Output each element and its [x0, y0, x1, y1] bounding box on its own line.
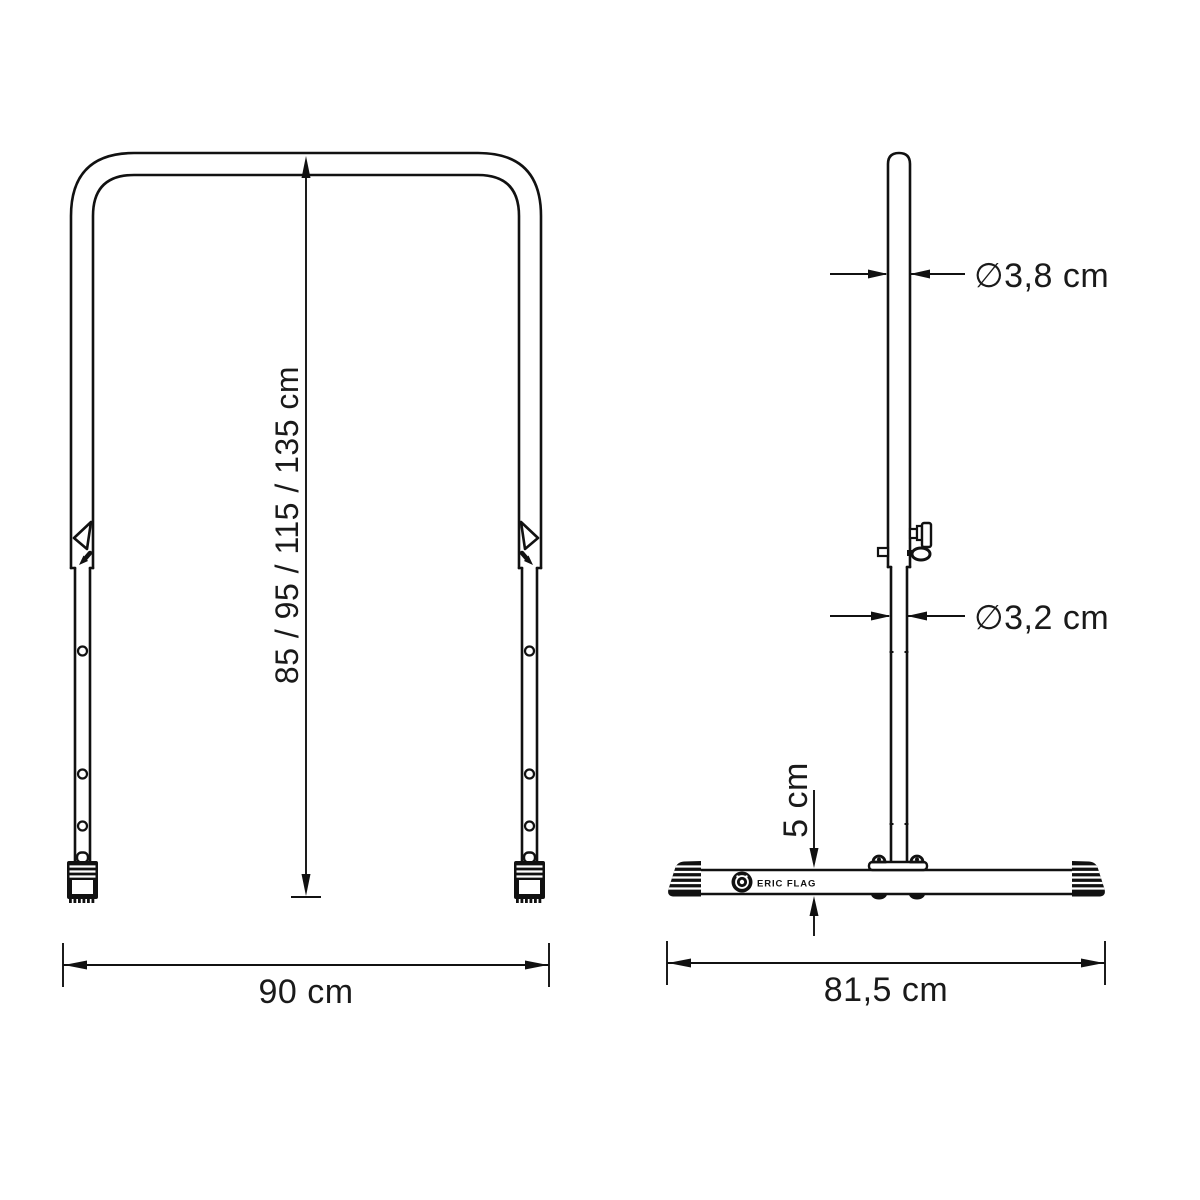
adjustment-hole — [525, 647, 534, 656]
left-clamp-indicator-icon — [74, 522, 91, 565]
left-foot — [67, 853, 98, 904]
adjustment-hole — [78, 822, 87, 831]
brand-logo-icon — [732, 872, 753, 893]
clamp-left-nub — [878, 548, 888, 556]
side-view: ∅3,8 cm ∅3,2 cm — [664, 153, 1109, 1009]
height-dimension: 85 / 95 / 115 / 135 cm — [269, 156, 321, 897]
base-height-label: 5 cm — [777, 762, 815, 838]
width-dimension: 90 cm — [63, 943, 549, 1011]
brand-label: ERIC FLAG — [757, 879, 816, 890]
base-height-dimension: 5 cm — [777, 762, 819, 936]
right-end-cap — [1068, 861, 1109, 897]
lower-diameter-dimension: ∅3,2 cm — [830, 599, 1109, 637]
adjustment-hole — [78, 770, 87, 779]
lower-tube — [890, 567, 909, 862]
width-dimension-label: 90 cm — [258, 973, 353, 1011]
right-leg-lower-tube — [522, 568, 537, 861]
bolt-right-under — [909, 894, 925, 900]
height-dimension-label: 85 / 95 / 115 / 135 cm — [269, 366, 305, 684]
adjustment-hole — [78, 647, 87, 656]
top-diameter-label: ∅3,8 cm — [974, 257, 1109, 295]
left-end-cap — [664, 861, 705, 897]
right-foot — [514, 853, 545, 904]
clamp-assembly — [878, 523, 931, 560]
pull-ring — [912, 548, 930, 560]
lower-diameter-label: ∅3,2 cm — [974, 599, 1109, 637]
adjustment-hole — [525, 770, 534, 779]
base-length-label: 81,5 cm — [824, 971, 948, 1009]
upper-tube — [888, 153, 910, 567]
base-bar: ERIC FLAG — [664, 856, 1109, 900]
left-leg-lower-tube — [75, 568, 90, 861]
bolt-left-under — [871, 894, 887, 900]
clamp-knob — [922, 523, 931, 547]
front-view: 85 / 95 / 115 / 135 cm 90 cm — [63, 153, 549, 1011]
technical-drawing-dip-bars: 85 / 95 / 115 / 135 cm 90 cm — [0, 0, 1200, 1200]
adjustment-hole — [525, 822, 534, 831]
right-clamp-indicator-icon — [521, 522, 538, 565]
base-length-dimension: 81,5 cm — [667, 941, 1105, 1009]
top-diameter-dimension: ∅3,8 cm — [830, 257, 1109, 295]
